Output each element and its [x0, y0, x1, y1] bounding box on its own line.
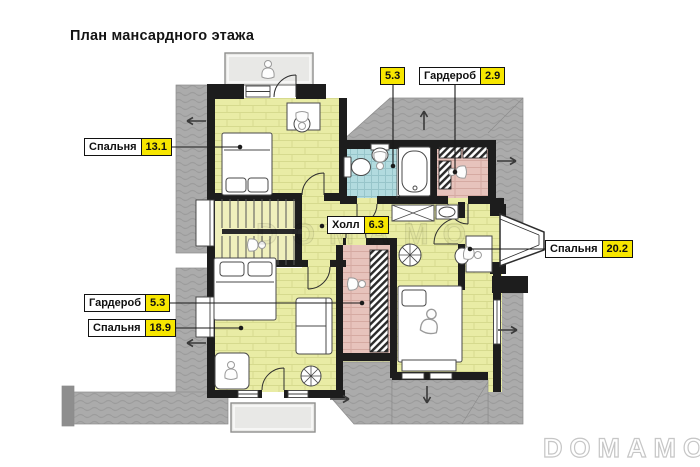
pillow: [248, 262, 272, 276]
watermark-corner: DOMAMO: [543, 433, 700, 464]
room-area: 5.3: [381, 68, 404, 84]
toilet-icon: [352, 159, 371, 176]
pillow: [226, 178, 246, 192]
room-name: Гардероб: [420, 68, 480, 84]
pillow: [248, 178, 268, 192]
room-area: 20.2: [602, 241, 632, 257]
page-title: План мансардного этажа: [70, 28, 254, 44]
room-name: Спальня: [546, 241, 602, 257]
pillow: [402, 290, 426, 306]
bathtub-drain: [413, 186, 417, 190]
room-name: Холл: [328, 217, 364, 233]
chimney-block: [492, 276, 528, 293]
roof-top: [343, 98, 523, 140]
room-label-bedroom-13: Спальня 13.1: [84, 138, 172, 156]
room-area: 5.3: [145, 295, 169, 311]
roof-bottom-right: [392, 380, 488, 424]
window-bench: [402, 360, 456, 371]
wardrobe-shelf: [439, 161, 451, 189]
balcony-top: [225, 53, 313, 85]
room-label-bedroom-18: Спальня 18.9: [88, 319, 176, 337]
room-area: 18.9: [145, 320, 175, 336]
room-label-wardrobe-29: Гардероб 2.9: [419, 67, 505, 85]
wardrobe-shelf: [439, 147, 461, 158]
room-label-bedroom-20: Спальня 20.2: [545, 240, 633, 258]
room-label-wardrobe-53: Гардероб 5.3: [84, 294, 170, 312]
room-area: 6.3: [364, 217, 388, 233]
window-bed-wall-1: [402, 373, 424, 379]
wardrobe-shelf: [370, 250, 388, 352]
room-label-bathroom: 5.3: [380, 67, 405, 85]
room-area: 2.9: [480, 68, 504, 84]
roof-bottom-left: [65, 392, 228, 424]
toilet-tank-icon: [344, 157, 351, 177]
wardrobe-shelf: [463, 147, 487, 158]
roof-edge-block: [62, 386, 74, 426]
floor-bathroom: [345, 148, 397, 198]
room-name: Гардероб: [85, 295, 145, 311]
room-name: Спальня: [85, 139, 141, 155]
room-area: 13.1: [141, 139, 171, 155]
window-bed-wall-2: [430, 373, 452, 379]
balcony-bottom: [231, 403, 315, 432]
floor-plan-page: План мансардного этажа DOMAMO DOMAMO: [0, 0, 700, 467]
room-label-hall: Холл 6.3: [327, 216, 389, 234]
pillow: [220, 262, 244, 276]
window-left-upper: [196, 200, 214, 246]
room-name: Спальня: [89, 320, 145, 336]
